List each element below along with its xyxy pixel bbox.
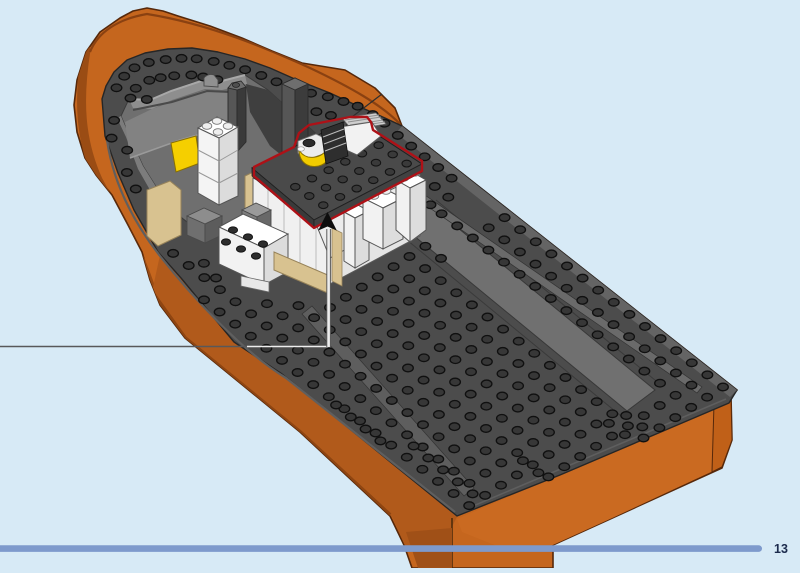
svg-text:13: 13 [774,542,788,556]
